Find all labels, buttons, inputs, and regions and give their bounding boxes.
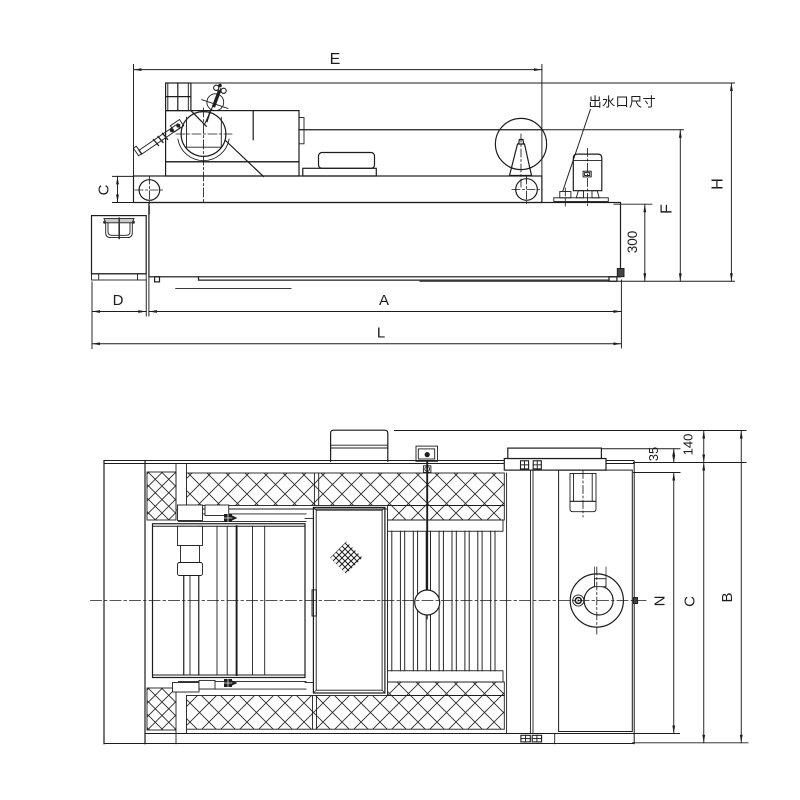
svg-text:F: F xyxy=(659,204,676,214)
svg-text:H: H xyxy=(710,178,727,190)
svg-text:E: E xyxy=(330,51,341,68)
svg-text:出水口尺寸: 出水口尺寸 xyxy=(589,95,656,110)
svg-text:L: L xyxy=(377,325,385,342)
svg-text:B: B xyxy=(719,592,736,602)
svg-text:300: 300 xyxy=(625,231,640,254)
svg-text:D: D xyxy=(113,292,124,309)
svg-text:140: 140 xyxy=(681,434,696,456)
svg-text:N: N xyxy=(652,596,669,607)
svg-text:35: 35 xyxy=(646,447,661,461)
svg-text:A: A xyxy=(379,292,389,309)
svg-text:C: C xyxy=(682,596,699,607)
svg-text:C: C xyxy=(96,184,113,195)
